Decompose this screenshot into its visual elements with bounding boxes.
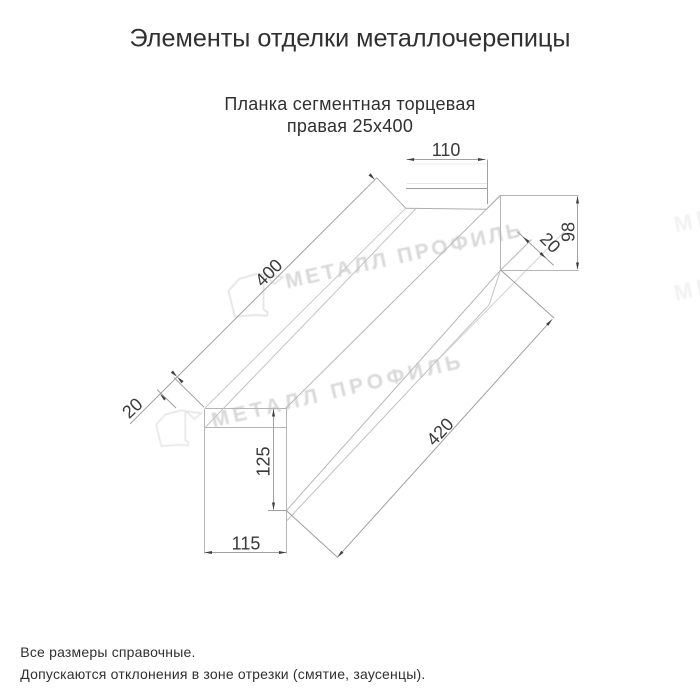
svg-text:110: 110 <box>432 140 461 160</box>
svg-text:Допускаются отклонения в зоне: Допускаются отклонения в зоне отрезки (с… <box>20 666 425 682</box>
svg-text:правая 25х400: правая 25х400 <box>287 116 413 136</box>
svg-text:Все размеры справочные.: Все размеры справочные. <box>20 644 195 660</box>
svg-text:125: 125 <box>254 446 274 476</box>
svg-text:Элементы отделки металлочерепи: Элементы отделки металлочерепицы <box>130 25 571 53</box>
svg-text:115: 115 <box>232 533 261 553</box>
svg-text:Планка сегментная торцевая: Планка сегментная торцевая <box>224 94 475 114</box>
